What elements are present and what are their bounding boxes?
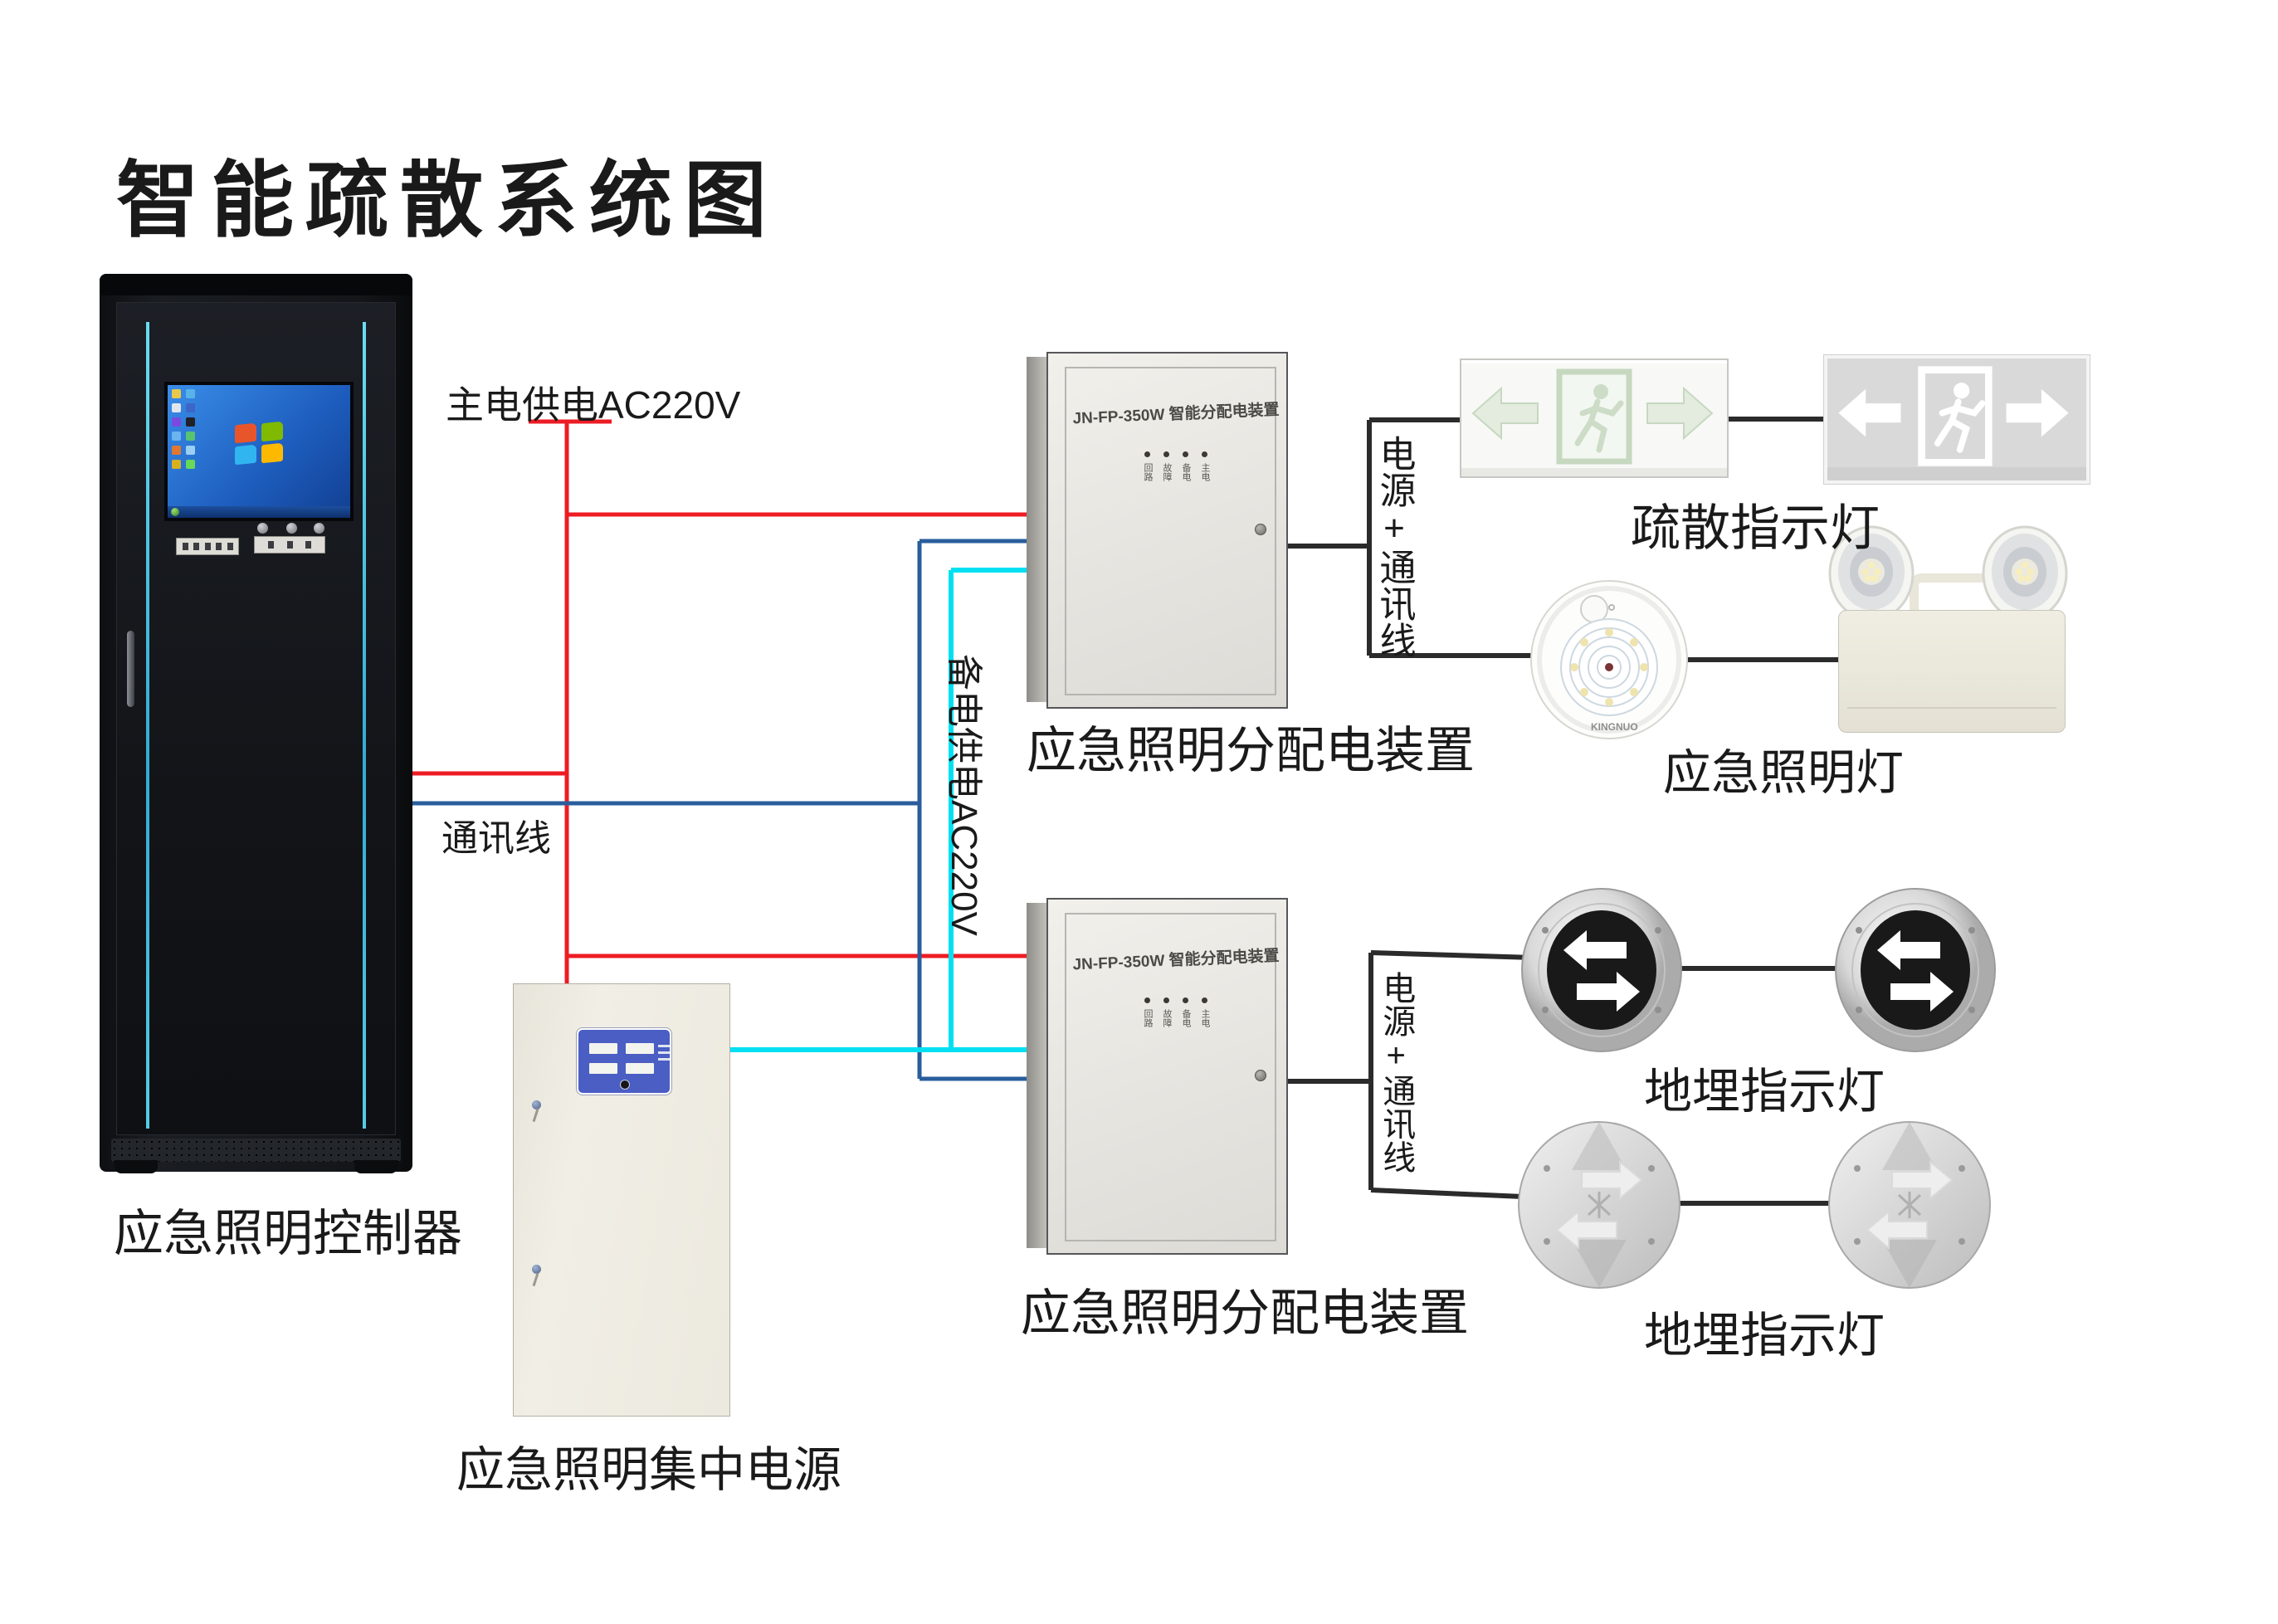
ground-light-glyph [1517,1120,1681,1290]
exit-sign1-glyphs [1461,360,1724,473]
indicator-leds [1068,997,1284,1003]
psu-digit-display [626,1043,654,1054]
ground-light-1b [1834,887,1997,1053]
taskbar [168,506,350,518]
body-groove [1847,707,2056,709]
exit-sign-1 [1460,358,1729,478]
windows-logo-pane [235,423,256,444]
comm-line-label: 通讯线 [441,808,551,861]
led-dot [1163,997,1169,1003]
desktop-icon [172,389,181,398]
rack-switch [268,541,274,549]
right-arrow-icon [1647,388,1712,438]
indicator-label: 主电 [1200,463,1209,481]
windows-logo-pane [235,445,256,466]
led-dot [1144,451,1150,457]
distribution-label-top: 应急照明分配电装置 [1027,710,1475,783]
rack-accent-strip-left [146,322,149,1129]
desktop-icon [172,417,181,427]
lamp-head-right [1982,525,2068,622]
psu-digit-display [589,1063,617,1074]
rack-button-strip [176,538,239,555]
lamp-brand-text: KINGNUO [1591,721,1638,733]
ground-light-2a [1517,1120,1680,1286]
psu-lock [532,1265,541,1274]
rack-button [227,543,233,550]
right-arrow-icon [2006,389,2068,437]
exit-sign2-glyphs [1827,358,2080,474]
ground-light-2b [1827,1120,1990,1286]
indicator-label: 回路 [1143,1009,1152,1027]
windows-logo-pane [261,422,283,442]
running-man-icon [1938,383,1983,450]
ground-light-glyph [1827,1120,1992,1290]
psu-display-panel [577,1028,671,1095]
backup-power-label: 备电供电AC220V [941,654,994,936]
led-dot [1202,997,1207,1003]
rack-foot [354,1160,398,1173]
exit-sign-2 [1824,355,2090,484]
indicator-label: 备电 [1181,1009,1190,1027]
power-comm-label-bottom: 电源+通讯线 [1378,971,1413,1173]
led-dot [1183,451,1188,457]
distribution-box-2: JN-FP-350W 智能分配电装置 回路 故障 备电 主电 [1027,898,1286,1253]
distribution-box-side [1027,903,1048,1248]
start-orb-icon [171,508,179,516]
rack-switch [305,541,311,549]
exit-sign-label: 疏散指示灯 [1631,488,1880,560]
indicator-labels: 回路 故障 备电 主电 [1068,1009,1284,1027]
rack-knob [314,523,324,534]
controller-label: 应急照明控制器 [114,1193,462,1266]
psu-lock [532,1100,541,1109]
distribution-box-lock [1255,1070,1266,1081]
indicator-label: 故障 [1162,1009,1171,1027]
emergency-ceiling-lamp: KINGNUO [1529,579,1689,742]
ceiling-lamp-glyph: KINGNUO [1529,579,1689,742]
led-dot [1163,451,1169,457]
left-arrow-icon [1473,388,1538,438]
indicator-leds [1068,451,1284,457]
ground-light-glyph [1834,887,1997,1053]
rack-door-handle [127,631,134,707]
emergency-light-label: 应急照明灯 [1663,734,1904,803]
rack-button [183,543,188,550]
desktop-icon [172,446,181,455]
led-dot [1183,997,1188,1003]
ground-light-1a [1520,887,1683,1053]
rack-switch [287,541,293,549]
rack-switch-strip [254,536,325,554]
desktop-icon [172,432,181,441]
desktop-icon [186,389,195,398]
rack-accent-strip-right [363,322,366,1129]
lamp-test-button [1581,596,1607,622]
ground-light-label-top: 地埋指示灯 [1644,1052,1885,1122]
distribution-box-lock [1255,524,1266,535]
page-title: 智能疏散系统图 [116,133,778,253]
rack-button [205,543,211,550]
diagram-canvas: 智能疏散系统图 [0,0,2278,1624]
psu-digit-display [626,1063,654,1074]
desktop-icon [186,446,195,455]
rack-top-bar [100,274,412,295]
rack-knob [286,523,297,534]
desktop-icon [172,403,181,412]
led-dot [1144,997,1150,1003]
main-power-wires [412,422,1031,983]
controller-rack [100,274,412,1172]
rack-knob [257,523,268,534]
indicator-label: 回路 [1143,463,1152,481]
ground-light-glyph [1520,887,1683,1053]
rack-button [193,543,199,550]
psu-digit-display [589,1043,617,1054]
indicator-labels: 回路 故障 备电 主电 [1068,463,1284,481]
distribution-label-bottom: 应急照明分配电装置 [1021,1273,1469,1345]
rack-foot [115,1160,158,1173]
lamp-led-rings [1561,619,1657,715]
psu-knob [620,1080,630,1090]
distribution-box-side [1027,357,1048,702]
distribution-box-face: JN-FP-350W 智能分配电装置 回路 故障 备电 主电 [1046,898,1288,1255]
indicator-label: 备电 [1181,463,1190,481]
rack-touchscreen [164,382,354,521]
central-power-label: 应急照明集中电源 [456,1431,841,1500]
distribution-box-1: JN-FP-350W 智能分配电装置 回路 故障 备电 主电 [1027,352,1286,707]
desktop-icon [186,460,195,469]
desktop-icon [172,460,181,469]
indicator-label: 故障 [1162,463,1171,481]
desktop-icon [186,403,195,412]
power-comm-label-top: 电源+通讯线 [1374,435,1414,658]
desktop-icon [186,432,195,441]
led-dot [1202,451,1207,457]
rack-button [216,543,222,550]
twin-light-body [1838,610,2066,733]
distribution-box-face: JN-FP-350W 智能分配电装置 回路 故障 备电 主电 [1046,352,1288,709]
psu-led-legend [658,1058,670,1061]
desktop-icons [172,389,200,469]
ground-light-label-bottom: 地埋指示灯 [1644,1296,1885,1366]
windows-logo [235,422,283,464]
left-arrow-icon [1838,389,1900,437]
desktop-icon [186,417,195,427]
indicator-label: 主电 [1200,1009,1209,1027]
windows-logo-pane [261,443,283,464]
psu-led-legend [658,1051,670,1054]
central-power-supply [513,983,730,1417]
psu-led-legend [658,1045,670,1047]
main-power-label: 主电供电AC220V [446,375,740,430]
rack-vent-grille [111,1139,401,1162]
